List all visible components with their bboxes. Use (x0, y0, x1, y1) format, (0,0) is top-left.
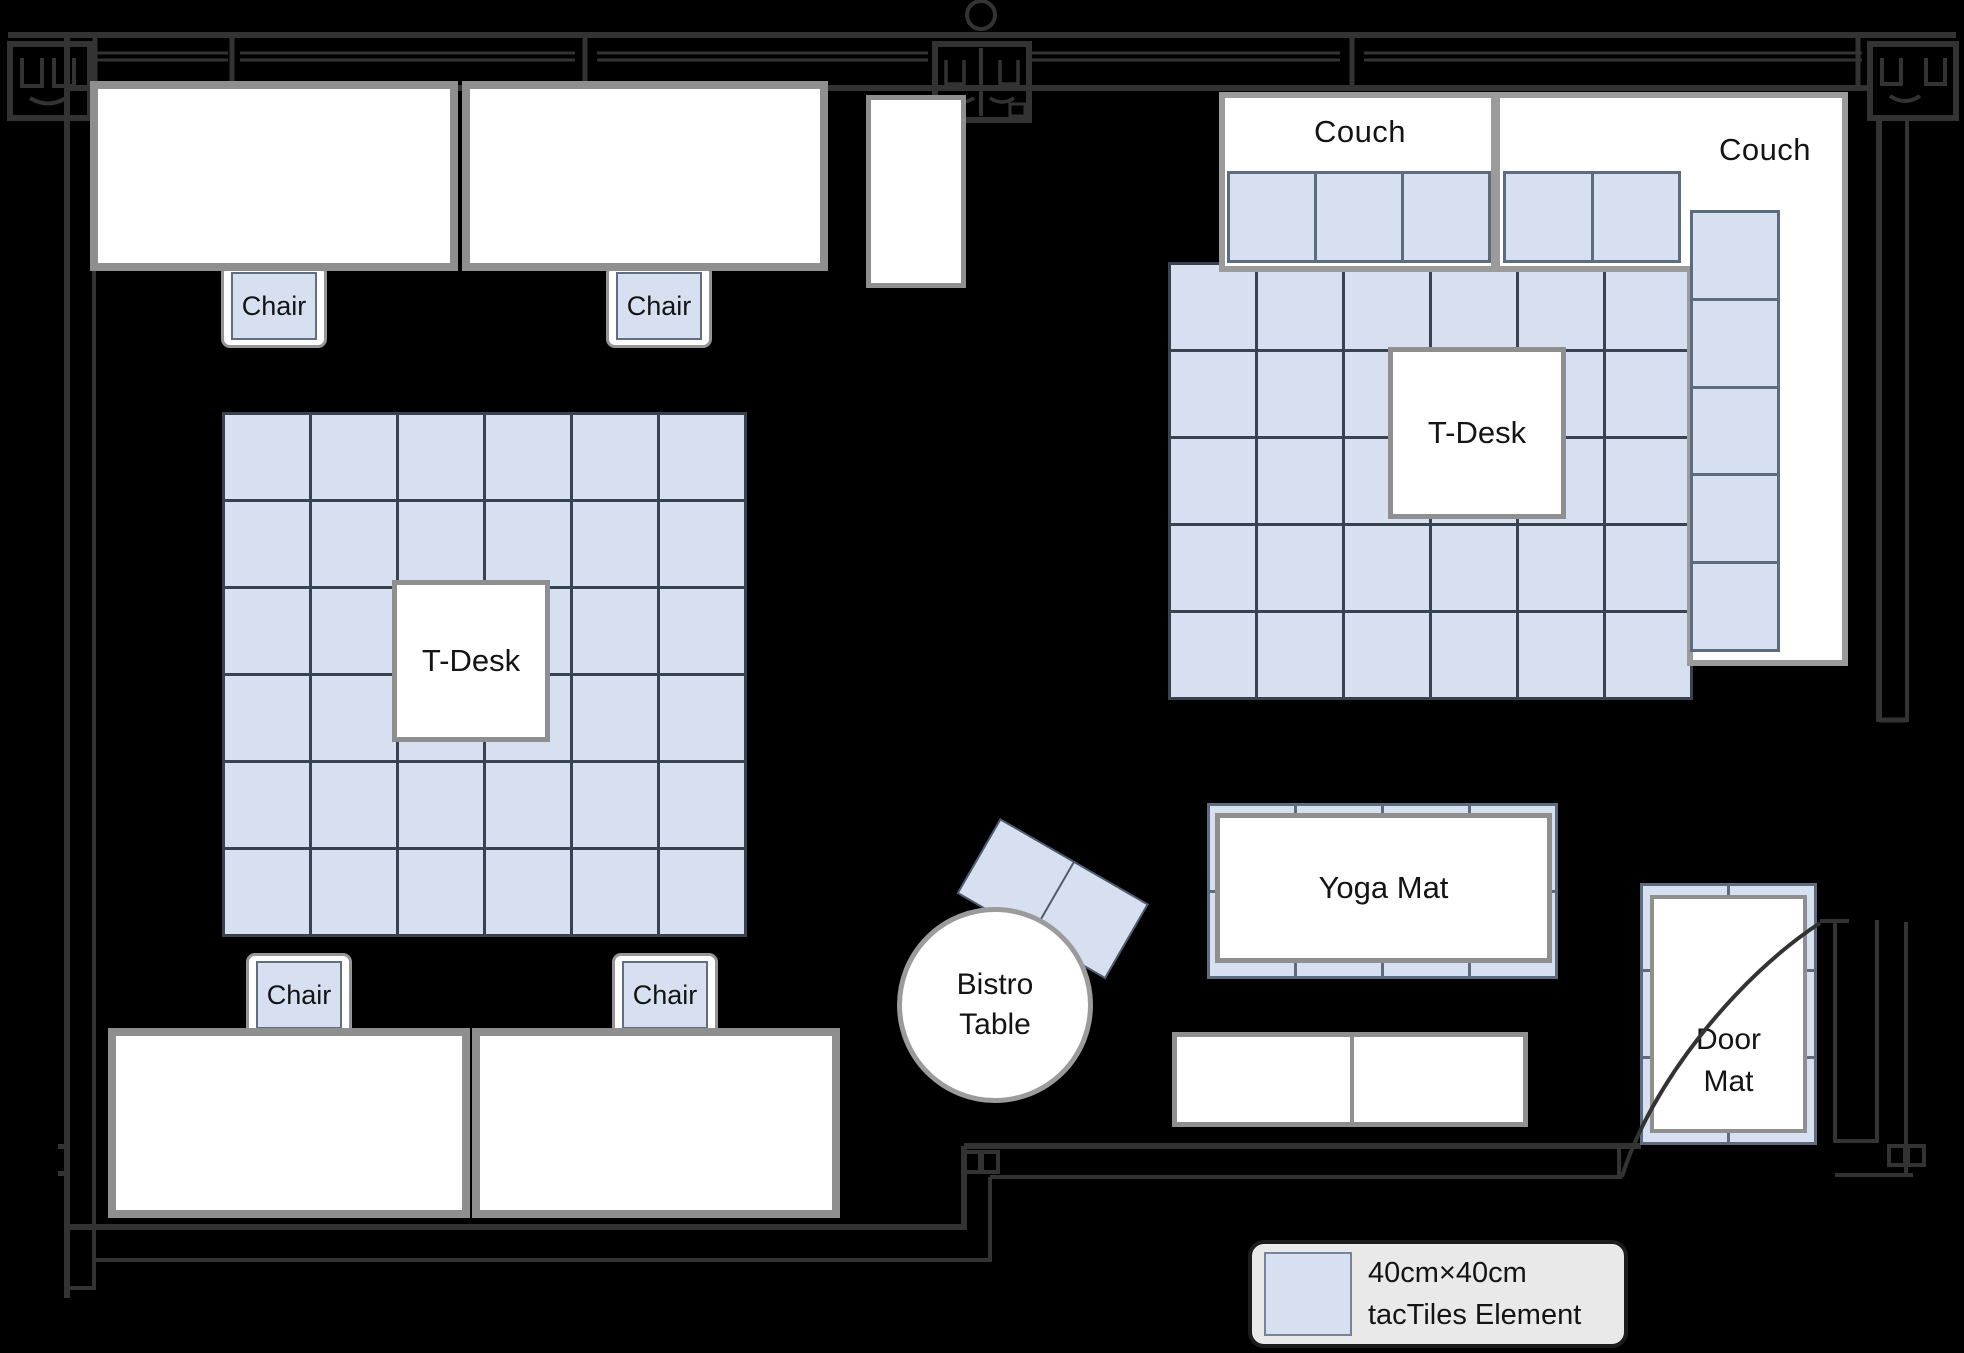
tactile-element (1258, 352, 1342, 436)
tactile-element (312, 676, 396, 760)
tactile-element (1594, 174, 1679, 260)
tactile-element (1506, 174, 1591, 260)
legend-tile-swatch (1264, 1252, 1352, 1336)
tactile-element (312, 502, 396, 586)
tactile-element (486, 763, 570, 847)
door-mat-label-line1: Door (1696, 1019, 1761, 1061)
tactile-element (1432, 526, 1516, 610)
bistro-label-line2: Table (959, 1005, 1031, 1045)
tactile-element (1432, 613, 1516, 697)
t-desk-right: T-Desk (1388, 347, 1566, 519)
tactile-element (660, 589, 744, 673)
tactile-element (1432, 265, 1516, 349)
tactile-element (1606, 613, 1690, 697)
tactile-element (399, 763, 483, 847)
chair-top-1-label: Chair (231, 272, 317, 340)
tactile-element (312, 763, 396, 847)
chair-bottom-2-label: Chair (622, 961, 708, 1029)
tactile-element (399, 850, 483, 934)
legend-line2: tacTiles Element (1368, 1294, 1581, 1336)
tactile-element (1606, 526, 1690, 610)
radiator-icon-right (1870, 44, 1956, 118)
tactile-element (1171, 439, 1255, 523)
chair-top-1: Chair (221, 264, 327, 348)
desk-top-left-1 (90, 81, 458, 271)
tactile-element (573, 763, 657, 847)
tactile-element (1519, 613, 1603, 697)
tactile-element (660, 763, 744, 847)
tactile-element (1171, 265, 1255, 349)
tactile-element (399, 415, 483, 499)
yoga-mat: Yoga Mat (1215, 813, 1552, 963)
tactile-element (1606, 439, 1690, 523)
couch-right-label: Couch (1680, 130, 1850, 170)
tactile-element (660, 415, 744, 499)
chair-bottom-1-label: Chair (256, 961, 342, 1029)
tactile-element (486, 502, 570, 586)
bistro-table: Bistro Table (897, 907, 1093, 1103)
tactile-element (1258, 526, 1342, 610)
tactile-element (1345, 265, 1429, 349)
tactile-element (573, 850, 657, 934)
desk-top-left-2 (462, 81, 828, 271)
tactile-element (660, 502, 744, 586)
tactile-element (1258, 439, 1342, 523)
bench-bottom (1172, 1032, 1528, 1127)
tactile-element (312, 589, 396, 673)
cabinet-top-middle (866, 95, 966, 288)
floor-plan: Couch Couch Chair Chair Chair Chair T-De… (0, 0, 1964, 1353)
tactile-element (1693, 389, 1777, 474)
desk-bottom-left-1 (108, 1028, 470, 1218)
tactile-element (1693, 213, 1777, 298)
t-desk-left: T-Desk (392, 580, 550, 742)
tactile-element (573, 676, 657, 760)
chair-bottom-2: Chair (612, 953, 718, 1037)
couch-left-seat-tiles (1227, 171, 1491, 263)
tactile-element (1693, 564, 1777, 649)
legend: 40cm×40cm tacTiles Element (1248, 1240, 1628, 1348)
tactile-element (225, 850, 309, 934)
chair-bottom-1: Chair (246, 953, 352, 1037)
tactile-element (1171, 352, 1255, 436)
tactile-element (1519, 265, 1603, 349)
tactile-element (1230, 174, 1314, 260)
tactile-element (1258, 613, 1342, 697)
tactile-element (312, 850, 396, 934)
tactile-element (660, 676, 744, 760)
tactile-element (1171, 526, 1255, 610)
tactile-element (1404, 174, 1488, 260)
tactile-element (312, 415, 396, 499)
bench-divider (1350, 1037, 1354, 1122)
tactile-element (1258, 265, 1342, 349)
tactile-element (1345, 526, 1429, 610)
tactile-element (1171, 613, 1255, 697)
outlet-icon (964, 1146, 1924, 1172)
tactile-element (399, 502, 483, 586)
tactile-element (225, 763, 309, 847)
couch-left-label: Couch (1240, 112, 1480, 152)
chair-top-2: Chair (606, 264, 712, 348)
window-mullions (95, 37, 1858, 86)
tactile-element (225, 502, 309, 586)
tactile-element (1345, 613, 1429, 697)
door-frame (1820, 920, 1913, 1175)
window-glazing-lines (95, 53, 1862, 60)
tactile-element (1519, 526, 1603, 610)
tactile-element (225, 589, 309, 673)
tactile-element (1693, 301, 1777, 386)
couch-right-seat-tiles (1503, 171, 1681, 263)
tactile-element (660, 850, 744, 934)
tactile-element (1606, 265, 1690, 349)
tactile-element (573, 415, 657, 499)
desk-bottom-left-2 (472, 1028, 840, 1218)
bistro-label-line1: Bistro (957, 965, 1034, 1005)
tactile-element (1317, 174, 1401, 260)
tactile-element (486, 850, 570, 934)
chair-top-2-label: Chair (616, 272, 702, 340)
tactile-element (1693, 476, 1777, 561)
door-mat: Door Mat (1650, 895, 1807, 1133)
radiator-icon-left (10, 44, 90, 118)
tactile-element (225, 676, 309, 760)
legend-line1: 40cm×40cm (1368, 1252, 1581, 1294)
tactile-element (573, 589, 657, 673)
tactile-element (486, 415, 570, 499)
door-mat-label-line2: Mat (1703, 1061, 1753, 1103)
tactile-element (225, 415, 309, 499)
tactile-element (573, 502, 657, 586)
couch-right-column-tiles (1690, 210, 1780, 652)
tactile-element (1606, 352, 1690, 436)
